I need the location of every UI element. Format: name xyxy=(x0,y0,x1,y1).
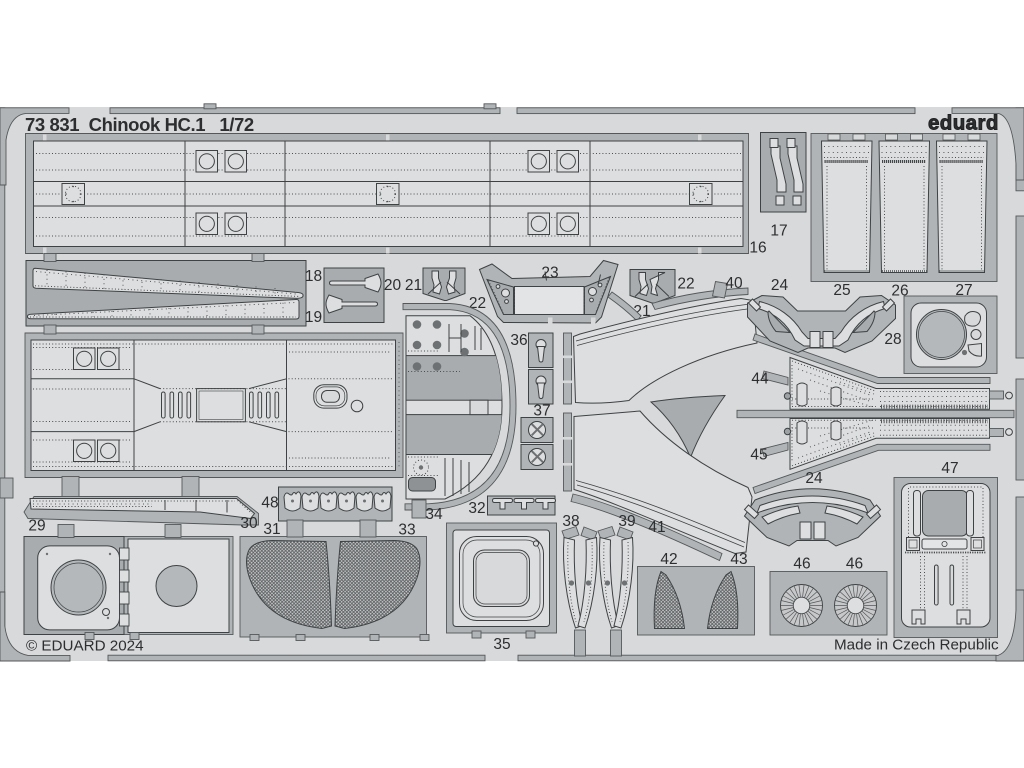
svg-text:44: 44 xyxy=(751,371,769,388)
svg-text:36: 36 xyxy=(510,332,527,349)
svg-text:23: 23 xyxy=(541,265,558,282)
svg-text:33: 33 xyxy=(398,522,415,539)
svg-text:22: 22 xyxy=(677,276,694,293)
svg-text:47: 47 xyxy=(941,460,958,477)
svg-text:34: 34 xyxy=(425,506,443,523)
svg-text:29: 29 xyxy=(28,518,45,535)
svg-text:38: 38 xyxy=(562,513,579,530)
svg-text:20: 20 xyxy=(384,277,402,294)
svg-text:Made in Czech Republic: Made in Czech Republic xyxy=(834,637,999,654)
svg-text:42: 42 xyxy=(660,551,677,568)
svg-text:39: 39 xyxy=(618,513,635,530)
svg-text:43: 43 xyxy=(730,551,747,568)
svg-text:35: 35 xyxy=(493,636,510,653)
svg-text:31: 31 xyxy=(263,521,280,538)
svg-text:17: 17 xyxy=(770,223,787,240)
svg-text:37: 37 xyxy=(533,403,550,420)
svg-text:41: 41 xyxy=(648,519,665,536)
svg-text:25: 25 xyxy=(833,282,850,299)
svg-text:40: 40 xyxy=(725,275,743,292)
svg-text:46: 46 xyxy=(846,556,863,573)
svg-text:18: 18 xyxy=(305,268,322,285)
svg-text:32: 32 xyxy=(468,500,485,517)
svg-text:24: 24 xyxy=(805,470,823,487)
svg-text:16: 16 xyxy=(749,240,766,257)
svg-text:30: 30 xyxy=(240,515,258,532)
svg-text:46: 46 xyxy=(793,556,810,573)
svg-text:24: 24 xyxy=(771,277,789,294)
svg-text:48: 48 xyxy=(261,495,278,512)
svg-text:19: 19 xyxy=(305,309,322,326)
svg-text:28: 28 xyxy=(884,331,901,348)
svg-text:© EDUARD 2024: © EDUARD 2024 xyxy=(26,638,144,655)
svg-text:21: 21 xyxy=(405,277,422,294)
svg-text:45: 45 xyxy=(750,447,767,464)
svg-text:73 831 Chinook HC.1 1/72: 73 831 Chinook HC.1 1/72 xyxy=(25,114,254,135)
svg-text:eduard: eduard xyxy=(928,112,999,135)
